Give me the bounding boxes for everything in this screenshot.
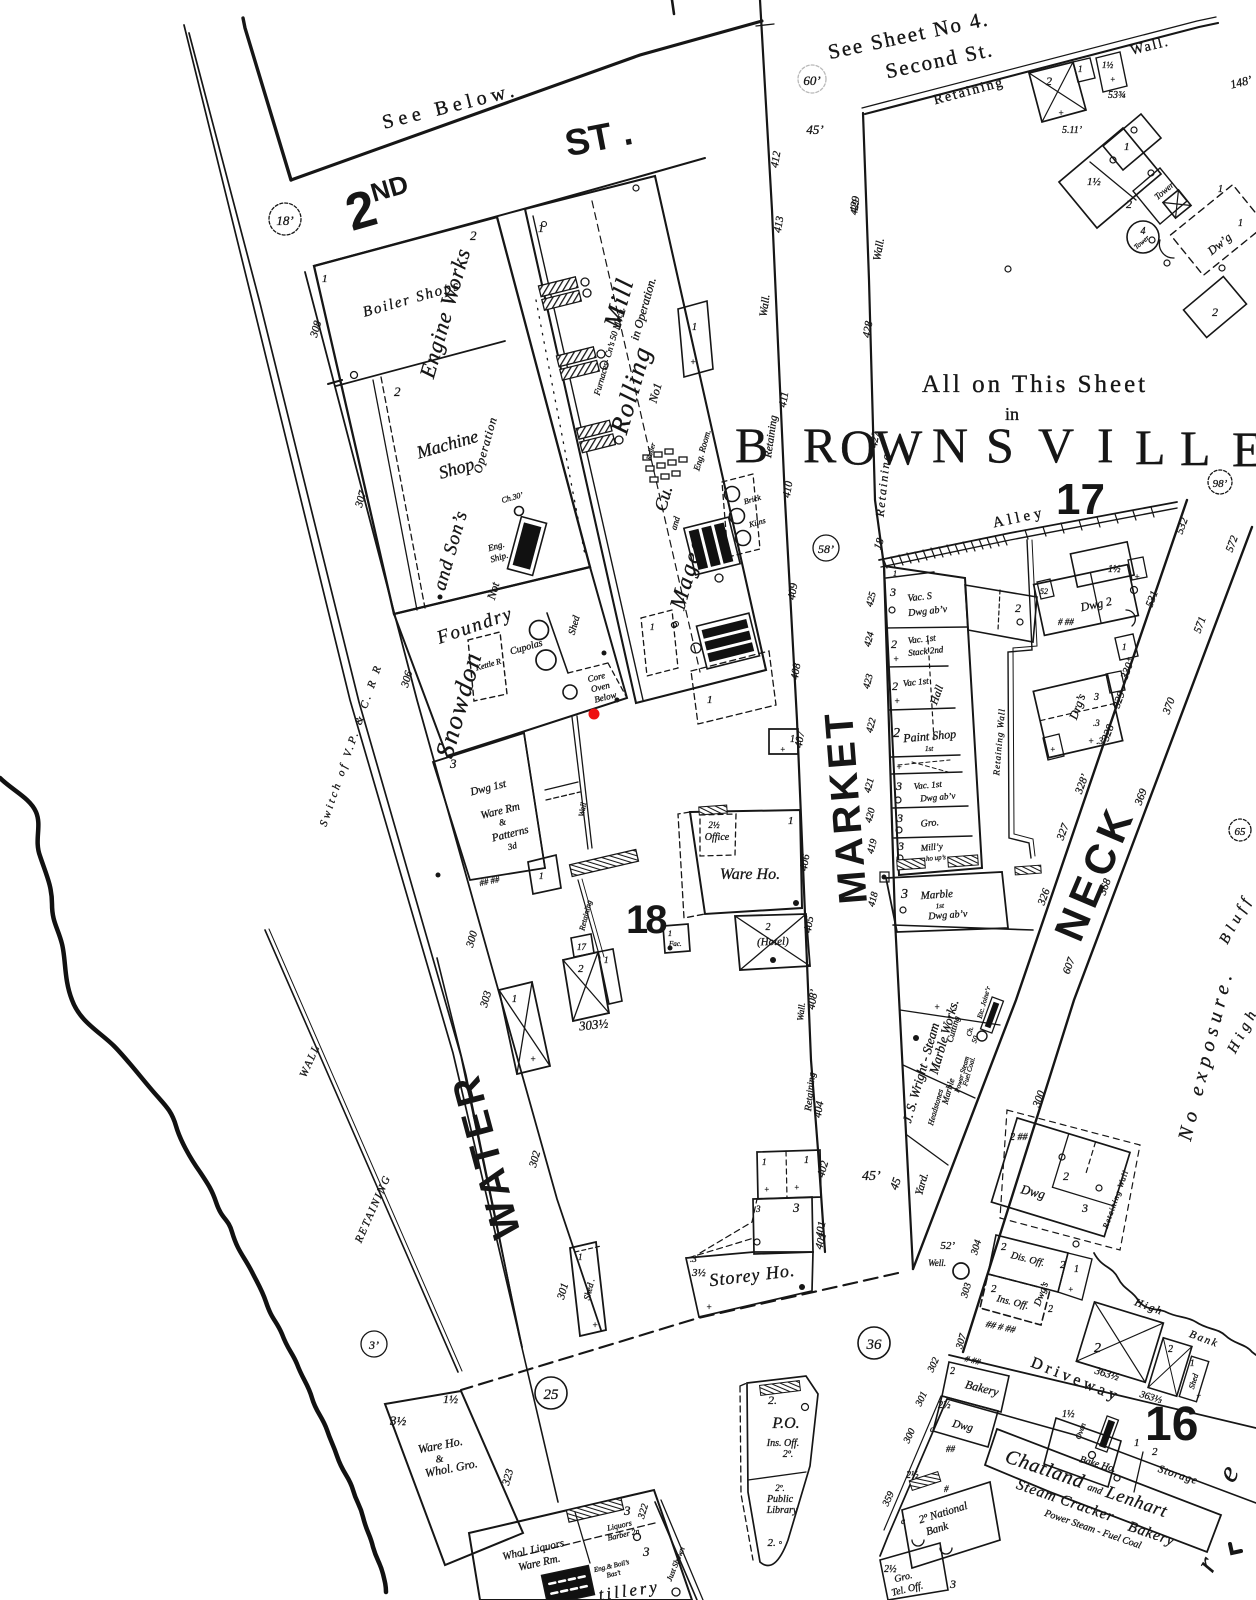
svg-text:1: 1 (1074, 1264, 1079, 1275)
svg-text:2: 2 (991, 1283, 997, 1295)
svg-text:3: 3 (949, 1577, 956, 1591)
svg-text:+: + (1134, 572, 1140, 582)
svg-text:1: 1 (1122, 642, 1127, 652)
svg-text:1: 1 (788, 815, 794, 827)
svg-text:3: 3 (792, 1200, 800, 1215)
svg-text:3: 3 (889, 585, 896, 599)
svg-text:2: 2 (1015, 601, 1021, 615)
svg-text:E: E (1232, 421, 1256, 477)
svg-text:Gro.: Gro. (920, 817, 939, 830)
svg-text:##: ## (946, 1444, 956, 1454)
svg-text:P.O.: P.O. (771, 1415, 799, 1432)
svg-text:17: 17 (1056, 475, 1105, 524)
svg-text:Ins. Off.: Ins. Off. (766, 1438, 800, 1449)
svg-text:3: 3 (897, 839, 904, 853)
svg-text:R: R (803, 417, 837, 473)
svg-text:60’: 60’ (803, 73, 820, 88)
svg-text:1: 1 (1134, 1437, 1140, 1449)
svg-text:+: + (794, 1183, 799, 1192)
svg-text:1: 1 (692, 322, 697, 333)
svg-text:2: 2 (1152, 1446, 1158, 1458)
svg-text:S: S (986, 417, 1014, 473)
svg-text:+: + (690, 357, 696, 367)
svg-text:52: 52 (1040, 587, 1048, 596)
svg-text:36: 36 (866, 1337, 883, 1353)
svg-text:+: + (893, 654, 899, 664)
svg-text:I: I (1097, 417, 1114, 473)
svg-text:1: 1 (650, 622, 655, 632)
svg-text:2: 2 (766, 922, 771, 933)
svg-text:c: c (901, 1516, 905, 1526)
svg-text:+: + (530, 1054, 536, 1064)
svg-text:3: 3 (755, 1204, 761, 1214)
svg-text:(Hotel): (Hotel) (757, 935, 790, 948)
svg-text:+: + (1068, 1285, 1073, 1294)
svg-text:+: + (780, 745, 785, 754)
svg-text:+: + (1196, 1391, 1201, 1400)
svg-text:1: 1 (893, 569, 897, 578)
svg-text:2: 2 (1094, 1341, 1101, 1356)
svg-text:1½: 1½ (443, 1392, 458, 1406)
svg-text:L: L (1180, 420, 1211, 476)
svg-text:1: 1 (707, 694, 713, 706)
svg-text:2º.: 2º. (783, 1449, 794, 1460)
svg-text:45’: 45’ (862, 1169, 881, 1184)
svg-text:3’: 3’ (368, 1338, 379, 1352)
svg-text:3: 3 (1093, 692, 1099, 703)
svg-text:+: + (592, 1320, 598, 1330)
svg-text:+: + (1050, 745, 1055, 754)
svg-text:Public: Public (766, 1494, 794, 1505)
svg-text:16: 16 (1145, 1398, 1198, 1451)
svg-text:V: V (1038, 417, 1074, 473)
svg-text:# ##: # ## (1058, 617, 1074, 627)
svg-text:1: 1 (1238, 218, 1243, 229)
svg-text:.3: .3 (1093, 718, 1100, 728)
svg-text:2: 2 (470, 228, 477, 243)
svg-text:65: 65 (1235, 826, 1247, 838)
svg-text:+: + (1058, 108, 1064, 118)
svg-text:2: 2 (394, 384, 401, 399)
svg-text:2: 2 (1063, 1169, 1069, 1183)
svg-text:2: 2 (891, 637, 897, 651)
svg-text:L: L (1135, 419, 1166, 475)
svg-text:2: 2 (893, 726, 900, 741)
svg-text:1: 1 (1190, 1358, 1195, 1368)
svg-text:1½: 1½ (1062, 1409, 1075, 1420)
svg-text:1: 1 (604, 955, 609, 965)
svg-text:Office: Office (705, 832, 730, 843)
svg-text:+: + (1110, 75, 1115, 84)
svg-text:1: 1 (1218, 184, 1223, 195)
svg-text:2º.: 2º. (775, 1483, 785, 1493)
svg-text:2½: 2½ (906, 1470, 919, 1481)
svg-text:1: 1 (762, 1157, 767, 1167)
svg-text:2: 2 (1048, 1304, 1053, 1315)
svg-text:1½: 1½ (1087, 176, 1101, 188)
svg-text:2 ##: 2 ## (1010, 1132, 1029, 1143)
svg-text:3: 3 (449, 756, 457, 771)
svg-text:17: 17 (577, 942, 587, 952)
svg-text:1: 1 (668, 929, 672, 938)
svg-text:1: 1 (1078, 64, 1083, 74)
svg-text:Wall.: Wall. (795, 1002, 807, 1021)
svg-text:2.: 2. (768, 1393, 777, 1407)
svg-text:1: 1 (512, 994, 517, 1005)
svg-text:58’: 58’ (818, 542, 834, 556)
svg-text:+: + (894, 696, 900, 706)
svg-text:+: + (764, 1185, 769, 1194)
svg-text:#: # (944, 1484, 949, 1494)
svg-text:5.11’: 5.11’ (1062, 125, 1083, 136)
svg-text:2: 2 (1212, 305, 1218, 319)
svg-text:1: 1 (538, 221, 544, 235)
svg-text:3: 3 (895, 779, 902, 793)
svg-text:Well.: Well. (928, 1258, 946, 1268)
svg-text:N: N (932, 417, 968, 473)
svg-text:2: 2 (1001, 1241, 1007, 1253)
svg-text:+: + (934, 1002, 940, 1012)
svg-text:1: 1 (539, 871, 544, 881)
svg-text:1: 1 (804, 1155, 809, 1166)
svg-text:1: 1 (1124, 141, 1130, 153)
svg-text:+: + (896, 762, 902, 772)
svg-text:2: 2 (1126, 197, 1132, 211)
svg-text:52’: 52’ (940, 1240, 955, 1252)
svg-text:2: 2 (1168, 1344, 1173, 1355)
svg-text:1st: 1st (925, 745, 934, 753)
svg-text:1: 1 (322, 273, 328, 285)
svg-text:Library: Library (766, 1505, 798, 1516)
svg-text:2½: 2½ (708, 820, 720, 830)
svg-text:2: 2 (1046, 74, 1052, 88)
svg-text:3: 3 (900, 887, 908, 902)
svg-text:303½: 303½ (577, 1016, 609, 1034)
svg-text:18’: 18’ (276, 213, 293, 228)
svg-text:18: 18 (626, 898, 667, 942)
svg-text:Ware Ho.: Ware Ho. (720, 866, 780, 883)
svg-text:.3: .3 (690, 1254, 697, 1264)
svg-text:Mill’y: Mill’y (919, 841, 943, 853)
svg-text:3: 3 (642, 1544, 650, 1559)
svg-text:3½: 3½ (691, 1267, 706, 1279)
svg-text:25: 25 (544, 1387, 560, 1403)
svg-text:3½: 3½ (389, 1413, 407, 1428)
svg-text:2: 2 (578, 963, 584, 975)
svg-text:1½: 1½ (1102, 60, 1114, 70)
svg-text:1: 1 (578, 1252, 583, 1262)
svg-text:2: 2 (950, 1366, 955, 1377)
svg-text:Marble: Marble (919, 888, 953, 902)
svg-text:1½: 1½ (1108, 564, 1121, 575)
svg-text:All on This Sheet: All on This Sheet (922, 371, 1148, 398)
svg-text:98’: 98’ (1213, 478, 1228, 490)
svg-text:+: + (706, 1302, 712, 1312)
svg-text:3: 3 (896, 811, 903, 825)
svg-text:2. ◦: 2. ◦ (768, 1537, 783, 1549)
svg-text:3: 3 (1081, 1201, 1088, 1215)
svg-text:53¾: 53¾ (1108, 90, 1126, 101)
svg-text:45’: 45’ (806, 122, 823, 137)
svg-text:3: 3 (623, 1503, 631, 1518)
svg-text:2: 2 (892, 679, 898, 693)
